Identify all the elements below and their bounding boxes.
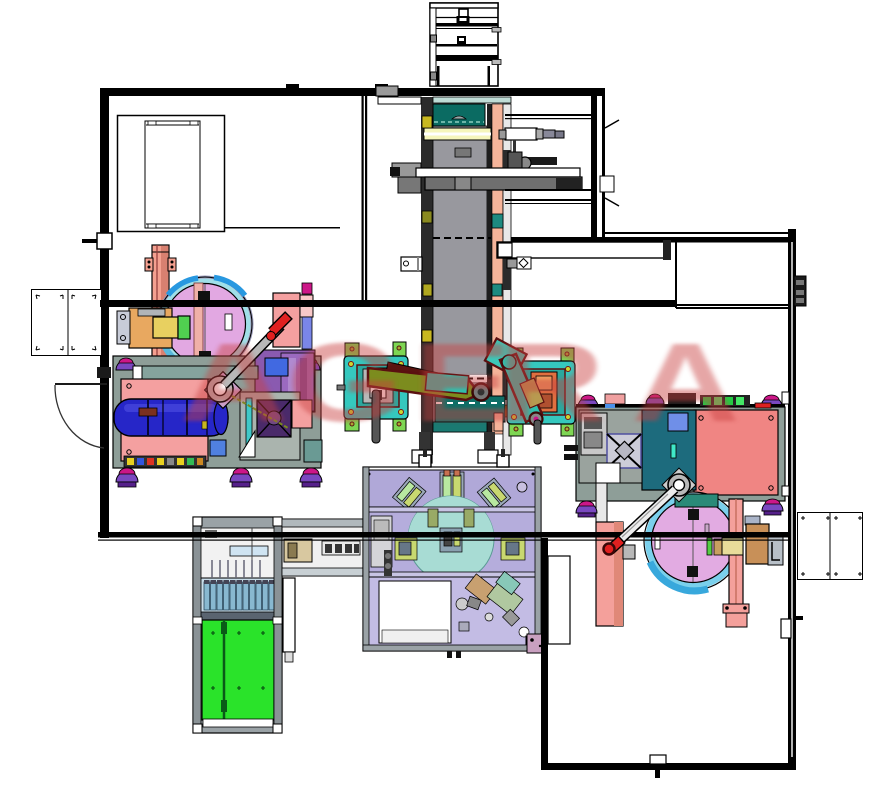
svg-text:G: G bbox=[287, 320, 403, 445]
svg-text:R: R bbox=[497, 320, 605, 445]
svg-text:A: A bbox=[632, 320, 740, 445]
svg-text:A: A bbox=[180, 320, 288, 445]
